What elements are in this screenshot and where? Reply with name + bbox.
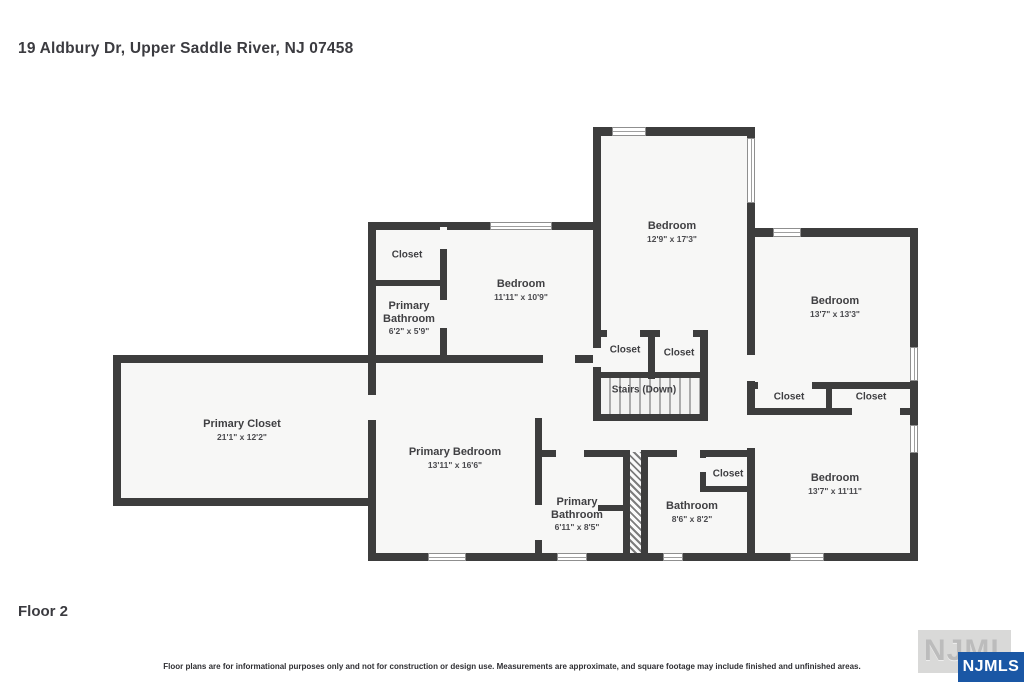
disclaimer-text: Floor plans are for informational purpos…: [0, 662, 1024, 671]
door-opening: [440, 227, 447, 249]
window-mullion: [558, 557, 586, 558]
window-mullion: [613, 131, 645, 132]
page-title: 19 Aldbury Dr, Upper Saddle River, NJ 07…: [18, 40, 353, 58]
room-label-bedroom-bottom-right: Bedroom 13'7" x 11'11": [808, 472, 862, 496]
door-opening: [607, 330, 640, 337]
room-label-bathroom: Bathroom 8'6" x 8'2": [666, 500, 718, 524]
window-mullion: [774, 232, 800, 233]
room-label-closet-right-1: Closet: [774, 391, 805, 403]
njmls-logo-text: NJMLS: [963, 658, 1020, 676]
wall: [368, 222, 601, 230]
room-label-closet-right-2: Closet: [856, 391, 887, 403]
wall: [648, 450, 755, 457]
window: [663, 553, 683, 561]
wall: [368, 222, 376, 362]
window: [773, 228, 801, 237]
room-label-primary-bedroom: Primary Bedroom 13'11" x 16'6": [409, 446, 501, 470]
room-label-bedroom-top-middle: Bedroom 12'9" x 17'3": [647, 220, 697, 244]
njmls-logo: NJMLS: [958, 652, 1024, 682]
room-label-primary-bathroom-upper: Primary Bathroom 6'2" x 5'9": [373, 300, 445, 336]
door-opening: [556, 450, 584, 457]
wall: [910, 228, 918, 560]
wall: [113, 355, 121, 506]
door-opening: [368, 395, 376, 420]
room-label-closet-top-left: Closet: [392, 249, 423, 261]
door-opening: [660, 330, 693, 337]
room-label-bedroom-top-left: Bedroom 11'11" x 10'9": [494, 278, 548, 302]
door-opening: [747, 415, 755, 448]
window: [747, 138, 755, 203]
door-opening: [543, 355, 575, 363]
window: [428, 553, 466, 561]
wall: [540, 450, 630, 457]
chimney-hatch: [630, 452, 641, 553]
room-label-stairs: Stairs (Down): [612, 384, 676, 396]
window-mullion: [914, 348, 915, 380]
window: [910, 425, 918, 453]
window-mullion: [914, 426, 915, 452]
window: [612, 127, 646, 136]
door-opening: [747, 355, 755, 381]
room-floor: [372, 226, 597, 359]
window-mullion: [751, 139, 752, 202]
room-label-closet-middle-1: Closet: [610, 344, 641, 356]
window-mullion: [664, 557, 682, 558]
window: [557, 553, 587, 561]
floor-label: Floor 2: [18, 603, 68, 620]
wall: [368, 280, 444, 286]
wall: [700, 486, 755, 492]
door-opening: [700, 458, 706, 472]
wall: [368, 355, 376, 560]
room-label-closet-middle-2: Closet: [664, 347, 695, 359]
wall: [593, 414, 708, 421]
floor-plan-page: 19 Aldbury Dr, Upper Saddle River, NJ 07…: [0, 0, 1024, 682]
window: [910, 347, 918, 381]
door-opening: [677, 450, 700, 457]
room-label-primary-bathroom-lower: Primary Bathroom 6'11" x 8'5": [541, 496, 613, 532]
door-opening: [758, 382, 812, 389]
room-label-bedroom-top-right: Bedroom 13'7" x 13'3": [810, 295, 860, 319]
wall: [113, 498, 375, 506]
window: [490, 222, 552, 230]
window-mullion: [791, 557, 823, 558]
room-label-primary-closet: Primary Closet 21'1" x 12'2": [203, 418, 281, 442]
window: [790, 553, 824, 561]
wall: [623, 450, 630, 560]
door-opening: [852, 408, 900, 415]
wall: [641, 450, 648, 560]
wall: [113, 355, 601, 363]
window-mullion: [429, 557, 465, 558]
room-label-closet-bathroom: Closet: [713, 468, 744, 480]
wall: [593, 372, 708, 378]
window-mullion: [491, 226, 551, 227]
door-opening: [593, 348, 601, 367]
